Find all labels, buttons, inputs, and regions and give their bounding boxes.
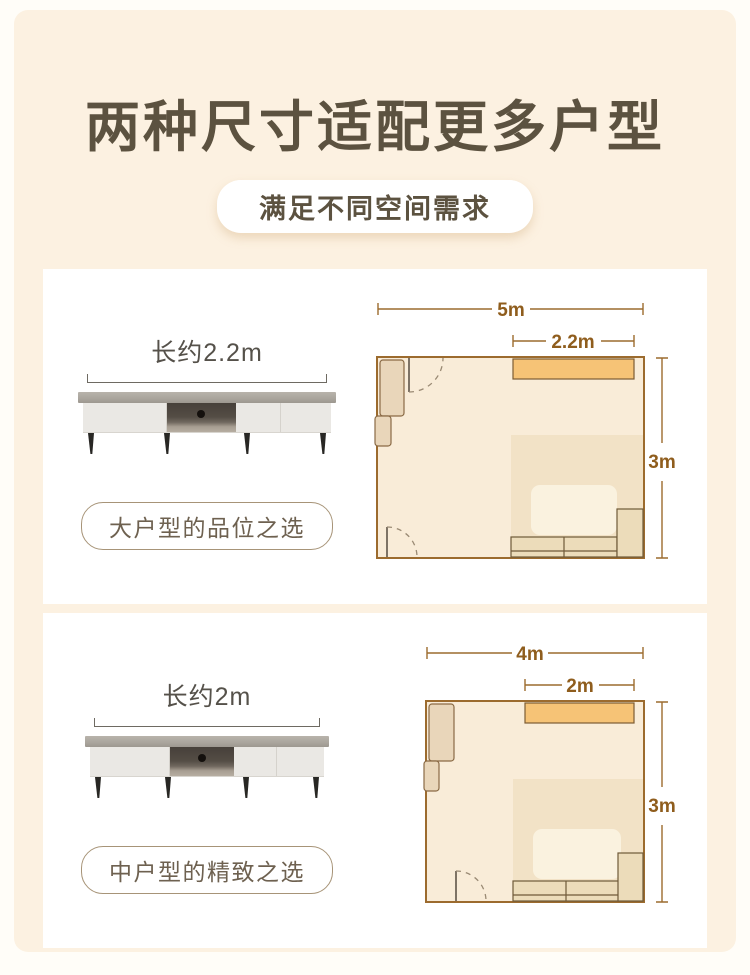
tv-stand-right-drawer-1 <box>236 403 282 432</box>
dimension-line <box>87 374 327 383</box>
tv-stand-body <box>83 403 331 433</box>
wardrobe <box>429 704 454 761</box>
tagline-pill-large: 大户型的品位之选 <box>81 502 333 550</box>
tv-width-label: 2m <box>566 676 593 697</box>
dimension-line <box>94 718 320 727</box>
tv-stand-leg <box>313 777 319 798</box>
size-card-large: 长约2.2m 大户型的品位之选 <box>43 269 707 604</box>
tv-stand-leg <box>164 433 170 454</box>
tv-width-label: 2.2m <box>551 332 594 353</box>
side-table <box>618 853 643 901</box>
tv-stand-open-shelf <box>167 403 235 432</box>
room-depth-label: 3m <box>648 452 675 473</box>
tv-stand-right-drawer-2 <box>277 747 324 776</box>
tv-stand-right-drawer-2 <box>281 403 331 432</box>
product-column-large: 长约2.2m 大户型的品位之选 <box>43 269 371 604</box>
tv-stand-leg <box>165 777 171 798</box>
product-dimension-large: 长约2.2m <box>87 333 327 383</box>
subtitle-pill: 满足不同空间需求 <box>217 180 533 233</box>
tv-stand-left-drawer <box>90 747 170 776</box>
sofa-cushion <box>533 829 621 879</box>
tv-stand-illustration <box>78 392 336 456</box>
tv-stand-top-slab <box>85 736 329 747</box>
tv-stand-left-drawer <box>83 403 167 432</box>
side-table <box>617 509 643 557</box>
subtitle-row: 满足不同空间需求 <box>14 180 736 233</box>
floorplan-large: 5m 2.2m 3m <box>371 301 683 563</box>
room-width-label: 5m <box>497 301 524 321</box>
room-width-label: 4m <box>516 645 543 665</box>
promo-section: 两种尺寸适配更多户型 满足不同空间需求 长约2.2m <box>14 10 736 952</box>
product-dimension-medium: 长约2m <box>94 677 320 727</box>
tv-stand-open-shelf <box>170 747 234 776</box>
size-card-medium: 长约2m 中户型的精致之选 <box>43 613 707 948</box>
tv-stand-marker <box>525 703 634 723</box>
floorplan-medium: 4m 2m 3m <box>371 645 683 907</box>
tv-stand-top-slab <box>78 392 336 403</box>
tv-stand-leg <box>244 433 250 454</box>
tagline-pill-medium: 中户型的精致之选 <box>81 846 333 894</box>
wardrobe <box>380 360 404 416</box>
floorplan-column-large: 5m 2.2m 3m <box>371 269 707 604</box>
page-title: 两种尺寸适配更多户型 <box>14 100 736 155</box>
tv-stand-marker <box>513 359 634 379</box>
tv-stand-illustration <box>85 736 329 800</box>
product-length-label: 长约2.2m <box>87 333 327 369</box>
product-length-label: 长约2m <box>94 677 320 713</box>
sofa-cushion <box>531 485 617 535</box>
wardrobe-small <box>424 761 439 791</box>
tv-stand-leg <box>320 433 326 454</box>
cable-hole <box>197 410 205 418</box>
tv-stand-leg <box>95 777 101 798</box>
floorplan-column-medium: 4m 2m 3m <box>371 613 707 948</box>
cable-hole <box>198 754 206 762</box>
tv-stand-body <box>90 747 324 777</box>
room-depth-label: 3m <box>648 796 675 817</box>
tv-stand-leg <box>88 433 94 454</box>
tv-stand-right-drawer-1 <box>234 747 277 776</box>
tv-stand-leg <box>243 777 249 798</box>
product-column-medium: 长约2m 中户型的精致之选 <box>43 613 371 948</box>
wardrobe-small <box>375 416 391 446</box>
